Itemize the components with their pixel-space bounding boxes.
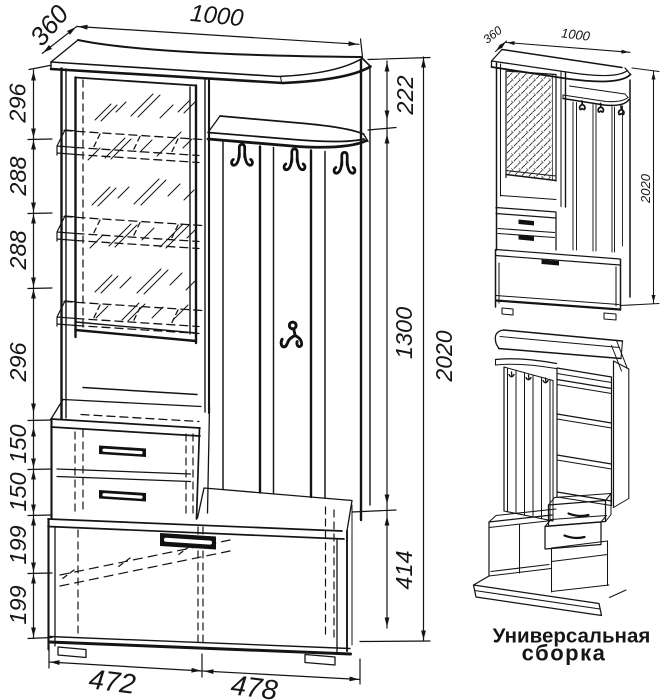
svg-text:150: 150 (5, 472, 31, 511)
svg-text:296: 296 (5, 82, 31, 123)
svg-text:199: 199 (5, 525, 31, 564)
svg-text:199: 199 (5, 585, 31, 624)
svg-text:288: 288 (5, 156, 31, 196)
svg-text:сборка: сборка (522, 641, 607, 666)
svg-text:150: 150 (5, 424, 31, 463)
svg-text:222: 222 (392, 75, 418, 115)
svg-text:288: 288 (5, 230, 31, 270)
svg-text:478: 478 (229, 669, 280, 700)
svg-text:360: 360 (24, 0, 75, 51)
svg-text:1000: 1000 (189, 0, 246, 32)
svg-text:2020: 2020 (638, 173, 653, 204)
svg-text:1000: 1000 (560, 25, 591, 44)
svg-text:1300: 1300 (391, 307, 417, 359)
svg-text:472: 472 (87, 663, 138, 700)
svg-text:296: 296 (5, 341, 31, 382)
svg-text:360: 360 (480, 23, 505, 47)
svg-text:414: 414 (391, 550, 417, 589)
svg-text:2020: 2020 (431, 330, 457, 382)
